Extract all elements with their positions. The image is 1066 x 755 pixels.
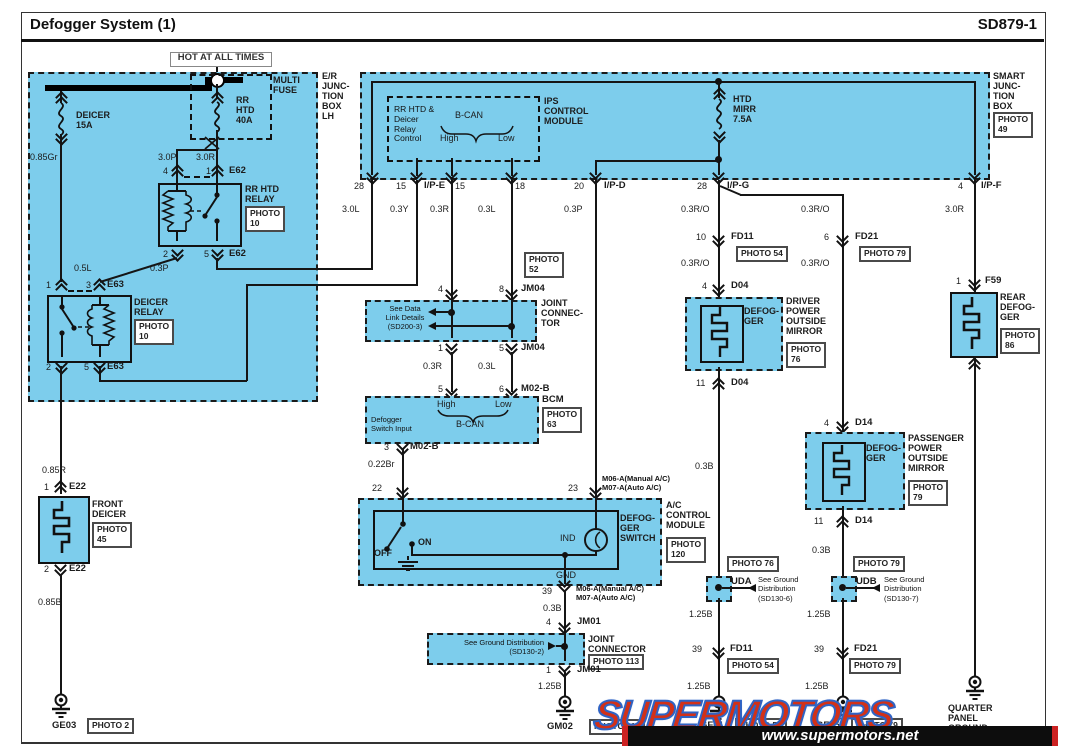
supermotors-watermark-url: www.supermotors.net (622, 726, 1058, 746)
wiring-diagram-page: Defogger System (1) SD879-1 HOT AT ALL T… (0, 0, 1066, 755)
wire-overlay (0, 0, 1066, 755)
